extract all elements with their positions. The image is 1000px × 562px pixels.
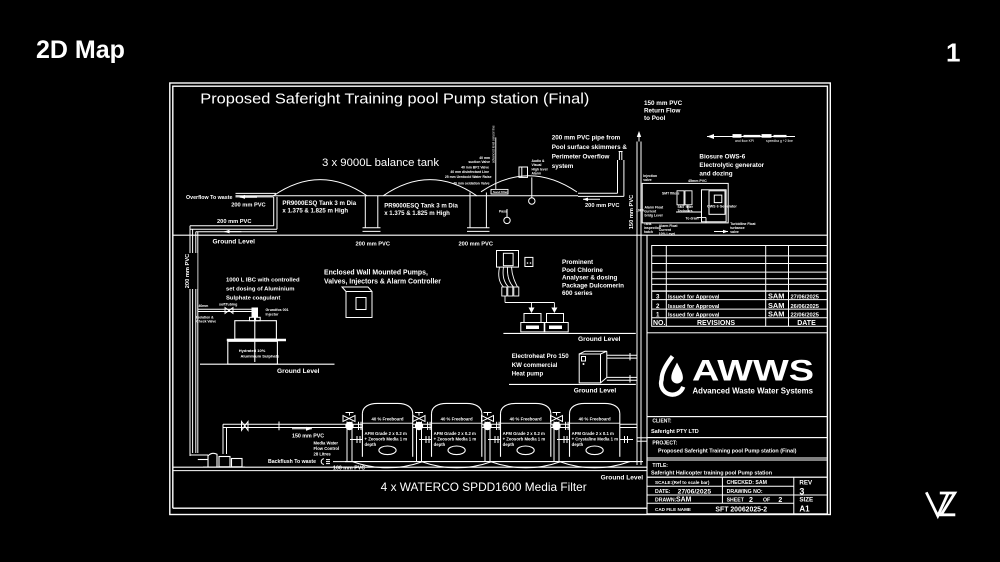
svg-text:x 1.375 & 1.825 m High: x 1.375 & 1.825 m High xyxy=(384,210,450,217)
svg-text:200 mm PVC: 200 mm PVC xyxy=(459,241,493,247)
svg-text:Pass: Pass xyxy=(499,210,507,214)
svg-text:depth: depth xyxy=(503,442,515,447)
svg-text:Electroheat Pro 150: Electroheat Pro 150 xyxy=(512,353,570,360)
svg-text:Prominent: Prominent xyxy=(562,259,594,266)
svg-text:Valves, Injectors & Alarm Cont: Valves, Injectors & Alarm Controller xyxy=(324,279,441,286)
svg-text:depth: depth xyxy=(572,442,584,447)
svg-text:depth: depth xyxy=(365,442,377,447)
svg-text:To drain: To drain xyxy=(686,216,699,220)
svg-text:200 mm PVC: 200 mm PVC xyxy=(231,202,265,208)
svg-text:PR9000ESQ Tank 3 m Dia: PR9000ESQ Tank 3 m Dia xyxy=(282,200,356,207)
svg-text:Sand filter: Sand filter xyxy=(493,190,509,194)
svg-text:2: 2 xyxy=(656,303,660,310)
svg-text:bridg Level: bridg Level xyxy=(645,214,663,218)
svg-text:SMT filters: SMT filters xyxy=(662,192,679,196)
svg-text:SAM: SAM xyxy=(676,497,692,504)
svg-text:1000 L IBC with controlled: 1000 L IBC with controlled xyxy=(226,278,300,284)
svg-text:suction Valve: suction Valve xyxy=(468,160,490,164)
svg-text:CHECKED: SAM: CHECKED: SAM xyxy=(727,480,767,486)
svg-text:hatch: hatch xyxy=(644,230,653,234)
svg-text:SAM: SAM xyxy=(768,309,784,318)
svg-text:27/06/2025: 27/06/2025 xyxy=(791,295,819,301)
svg-text:x 1.375 & 1.825 m High: x 1.375 & 1.825 m High xyxy=(282,208,348,215)
svg-text:10% Level: 10% Level xyxy=(659,232,675,236)
svg-text:SCALE:(Ref to scale bar): SCALE:(Ref to scale bar) xyxy=(655,480,710,485)
svg-text:2D Map: 2D Map xyxy=(36,36,125,64)
svg-text:softTubing: softTubing xyxy=(219,303,237,307)
svg-text:40mm: 40mm xyxy=(199,304,209,308)
svg-text:200 mm PVC pipe from: 200 mm PVC pipe from xyxy=(552,135,621,142)
svg-text:Biosure OWS-6: Biosure OWS-6 xyxy=(699,153,745,160)
svg-text:+ Zeosorb Media 1 m: + Zeosorb Media 1 m xyxy=(503,436,546,441)
svg-text:200 mm PVC: 200 mm PVC xyxy=(585,203,619,209)
svg-text:2: 2 xyxy=(749,497,753,504)
svg-text:valve: valve xyxy=(730,230,739,234)
svg-text:depth: depth xyxy=(434,442,446,447)
svg-text:1: 1 xyxy=(656,311,660,318)
svg-text:Pool surface skimmers &: Pool surface skimmers & xyxy=(552,144,628,151)
svg-text:Aluminium Sulphate: Aluminium Sulphate xyxy=(241,354,280,359)
svg-text:Pool Chlorine: Pool Chlorine xyxy=(562,267,603,274)
svg-text:DATE:: DATE: xyxy=(655,489,671,495)
svg-text:DRAWING NO:: DRAWING NO: xyxy=(727,489,763,495)
svg-text:3: 3 xyxy=(799,486,804,496)
svg-text:600 series: 600 series xyxy=(562,290,593,297)
svg-text:Package Dulcomerin: Package Dulcomerin xyxy=(562,282,624,289)
svg-text:Issued for Approval: Issued for Approval xyxy=(668,294,720,300)
svg-text:40 % Freeboard: 40 % Freeboard xyxy=(579,417,611,422)
svg-text:Hydrated 10%: Hydrated 10% xyxy=(239,348,266,353)
svg-text:SIZE: SIZE xyxy=(799,496,813,503)
svg-text:1: 1 xyxy=(946,38,960,68)
svg-text:4 x WATERCO SPDD1600 Media Fil: 4 x WATERCO SPDD1600 Media Filter xyxy=(381,480,587,494)
svg-text:valve: valve xyxy=(643,178,652,182)
svg-text:100%: 100% xyxy=(636,209,645,213)
svg-text:Issued for Approval: Issued for Approval xyxy=(668,312,720,318)
svg-text:Issued for Approval: Issued for Approval xyxy=(668,304,720,310)
svg-text:Check Valve: Check Valve xyxy=(196,320,216,324)
svg-text:SHEET: SHEET xyxy=(727,497,745,503)
svg-text:200 mm PVC: 200 mm PVC xyxy=(356,241,390,247)
svg-text:REVISIONS: REVISIONS xyxy=(697,320,735,327)
svg-text:Ground Level: Ground Level xyxy=(574,388,617,395)
svg-text:Sulphate coagulant: Sulphate coagulant xyxy=(226,296,280,302)
svg-text:40 mm BP2 Valve: 40 mm BP2 Valve xyxy=(461,166,489,170)
svg-text:DATE: DATE xyxy=(797,320,816,327)
svg-text:Saferight Halicopter training: Saferight Halicopter training pool Pump … xyxy=(651,471,772,477)
svg-text:Techours: Techours xyxy=(678,209,693,213)
svg-text:+ Crystaline Media 1 m: + Crystaline Media 1 m xyxy=(572,436,619,441)
svg-text:SFT 20062025-2: SFT 20062025-2 xyxy=(715,507,767,514)
svg-text:22/06/2025: 22/06/2025 xyxy=(791,313,819,319)
svg-text:Advanced Waste Water Systems: Advanced Waste Water Systems xyxy=(693,387,814,396)
svg-text:system: system xyxy=(552,163,574,170)
svg-text:150 mm PVC: 150 mm PVC xyxy=(292,434,324,440)
svg-text:Ground Level: Ground Level xyxy=(601,475,644,482)
svg-text:+ Zeosorb Media 1 m: + Zeosorb Media 1 m xyxy=(365,436,408,441)
svg-text:Media Water: Media Water xyxy=(314,441,339,446)
svg-text:NO.: NO. xyxy=(653,320,666,327)
svg-text:40 % Freeboard: 40 % Freeboard xyxy=(510,417,542,422)
svg-text:150 mm PVC: 150 mm PVC xyxy=(644,100,683,107)
svg-text:+ Zeosorb Media 1 m: + Zeosorb Media 1 m xyxy=(434,436,477,441)
svg-text:Saferight PTY LTD: Saferight PTY LTD xyxy=(651,429,699,435)
svg-text:SAM: SAM xyxy=(768,291,784,300)
svg-text:2: 2 xyxy=(778,497,782,504)
svg-text:Ground Level: Ground Level xyxy=(213,239,256,246)
svg-text:AWWS: AWWS xyxy=(692,355,814,388)
svg-text:KW commercial: KW commercial xyxy=(512,362,558,369)
svg-text:28 Litres: 28 Litres xyxy=(314,452,332,457)
svg-text:PROJECT:: PROJECT: xyxy=(652,440,677,446)
svg-text:40 mm oxidation Valve: 40 mm oxidation Valve xyxy=(453,182,489,186)
svg-text:Ground Level: Ground Level xyxy=(277,368,320,375)
svg-text:Enclosed Wall Mounted Pumps,: Enclosed Wall Mounted Pumps, xyxy=(324,270,428,277)
svg-text:and flow KPI: and flow KPI xyxy=(735,139,754,143)
svg-text:Grundfos 001: Grundfos 001 xyxy=(266,308,289,312)
svg-text:to Pool: to Pool xyxy=(644,115,666,122)
svg-text:A1: A1 xyxy=(799,504,810,513)
svg-text:Overflow To waste: Overflow To waste xyxy=(186,195,232,201)
svg-text:CAD FILE NAME: CAD FILE NAME xyxy=(655,507,691,512)
svg-text:45mm PVC: 45mm PVC xyxy=(688,179,707,183)
svg-text:AFM Grade 2 x 0.1 m: AFM Grade 2 x 0.1 m xyxy=(572,431,614,436)
svg-text:25 mm Uredocld Water Raise: 25 mm Uredocld Water Raise xyxy=(445,175,492,179)
svg-text:TITLE:: TITLE: xyxy=(652,463,668,469)
svg-text:3 x 9000L balance tank: 3 x 9000L balance tank xyxy=(322,157,439,169)
svg-text:Analyser & dosing: Analyser & dosing xyxy=(562,275,617,282)
svg-text:200 mm PVC: 200 mm PVC xyxy=(217,219,251,225)
svg-text:CLIENT:: CLIENT: xyxy=(652,418,672,424)
svg-text:27/06/2025: 27/06/2025 xyxy=(678,488,712,495)
svg-text:AFM Grade 2 x 0.2 m: AFM Grade 2 x 0.2 m xyxy=(434,431,476,436)
svg-text:AFM Grade 2 x 0.2 m: AFM Grade 2 x 0.2 m xyxy=(503,431,545,436)
svg-text:Alarm: Alarm xyxy=(532,172,542,176)
svg-text:150 mm PVC: 150 mm PVC xyxy=(629,195,635,229)
svg-text:Heat pump: Heat pump xyxy=(512,371,544,378)
svg-text:Return Flow: Return Flow xyxy=(644,108,680,115)
svg-text:Proposed Saferight Training po: Proposed Saferight Training pool Pump st… xyxy=(658,448,797,454)
svg-text:AFM Grade 2 x 0.2 m: AFM Grade 2 x 0.2 m xyxy=(365,431,407,436)
svg-text:40 % Freeboard: 40 % Freeboard xyxy=(441,417,473,422)
svg-text:PR9000ESQ Tank 3 m Dia: PR9000ESQ Tank 3 m Dia xyxy=(384,202,458,209)
svg-text:REV: REV xyxy=(799,479,813,486)
svg-text:200 mm PVC: 200 mm PVC xyxy=(185,254,191,288)
svg-text:Injector: Injector xyxy=(266,313,280,317)
svg-text:speedba g +2 line: speedba g +2 line xyxy=(766,139,793,143)
svg-text:Perimeter Overflow: Perimeter Overflow xyxy=(552,154,610,161)
svg-text:OF: OF xyxy=(763,497,770,503)
svg-text:3: 3 xyxy=(656,293,660,300)
svg-text:Flow Control: Flow Control xyxy=(314,446,340,451)
svg-text:26/06/2025: 26/06/2025 xyxy=(791,304,819,310)
svg-text:Backflush To waste: Backflush To waste xyxy=(268,459,316,465)
svg-text:set dosing of Aluminium: set dosing of Aluminium xyxy=(226,287,295,293)
svg-text:advanced level sensor line: advanced level sensor line xyxy=(492,125,496,163)
svg-text:40 mm disinfectant Line: 40 mm disinfectant Line xyxy=(450,170,489,174)
svg-text:and dozing: and dozing xyxy=(699,171,732,178)
svg-text:Proposed Saferight Training po: Proposed Saferight Training pool Pump st… xyxy=(200,91,589,108)
svg-text:Ground Level: Ground Level xyxy=(578,336,621,343)
svg-text:OWS 6 Generator: OWS 6 Generator xyxy=(707,205,737,209)
svg-text:DRAWN:: DRAWN: xyxy=(655,497,677,503)
svg-text:40 % Freeboard: 40 % Freeboard xyxy=(371,417,403,422)
svg-text:Electrolytic generator: Electrolytic generator xyxy=(699,162,764,169)
